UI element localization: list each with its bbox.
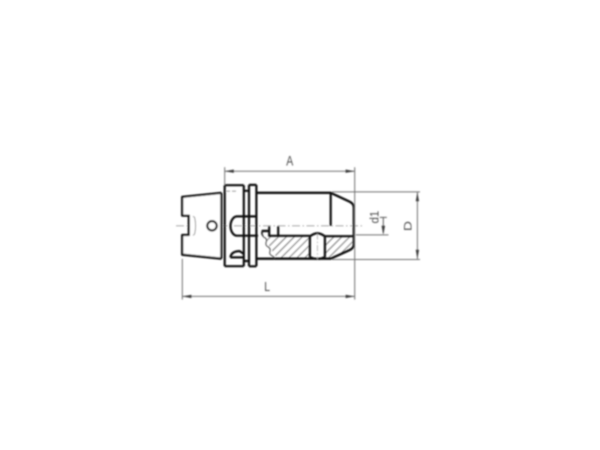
svg-text:L: L xyxy=(264,280,270,294)
svg-text:D: D xyxy=(402,221,414,231)
svg-text:A: A xyxy=(286,153,294,169)
svg-text:d1: d1 xyxy=(370,211,382,224)
